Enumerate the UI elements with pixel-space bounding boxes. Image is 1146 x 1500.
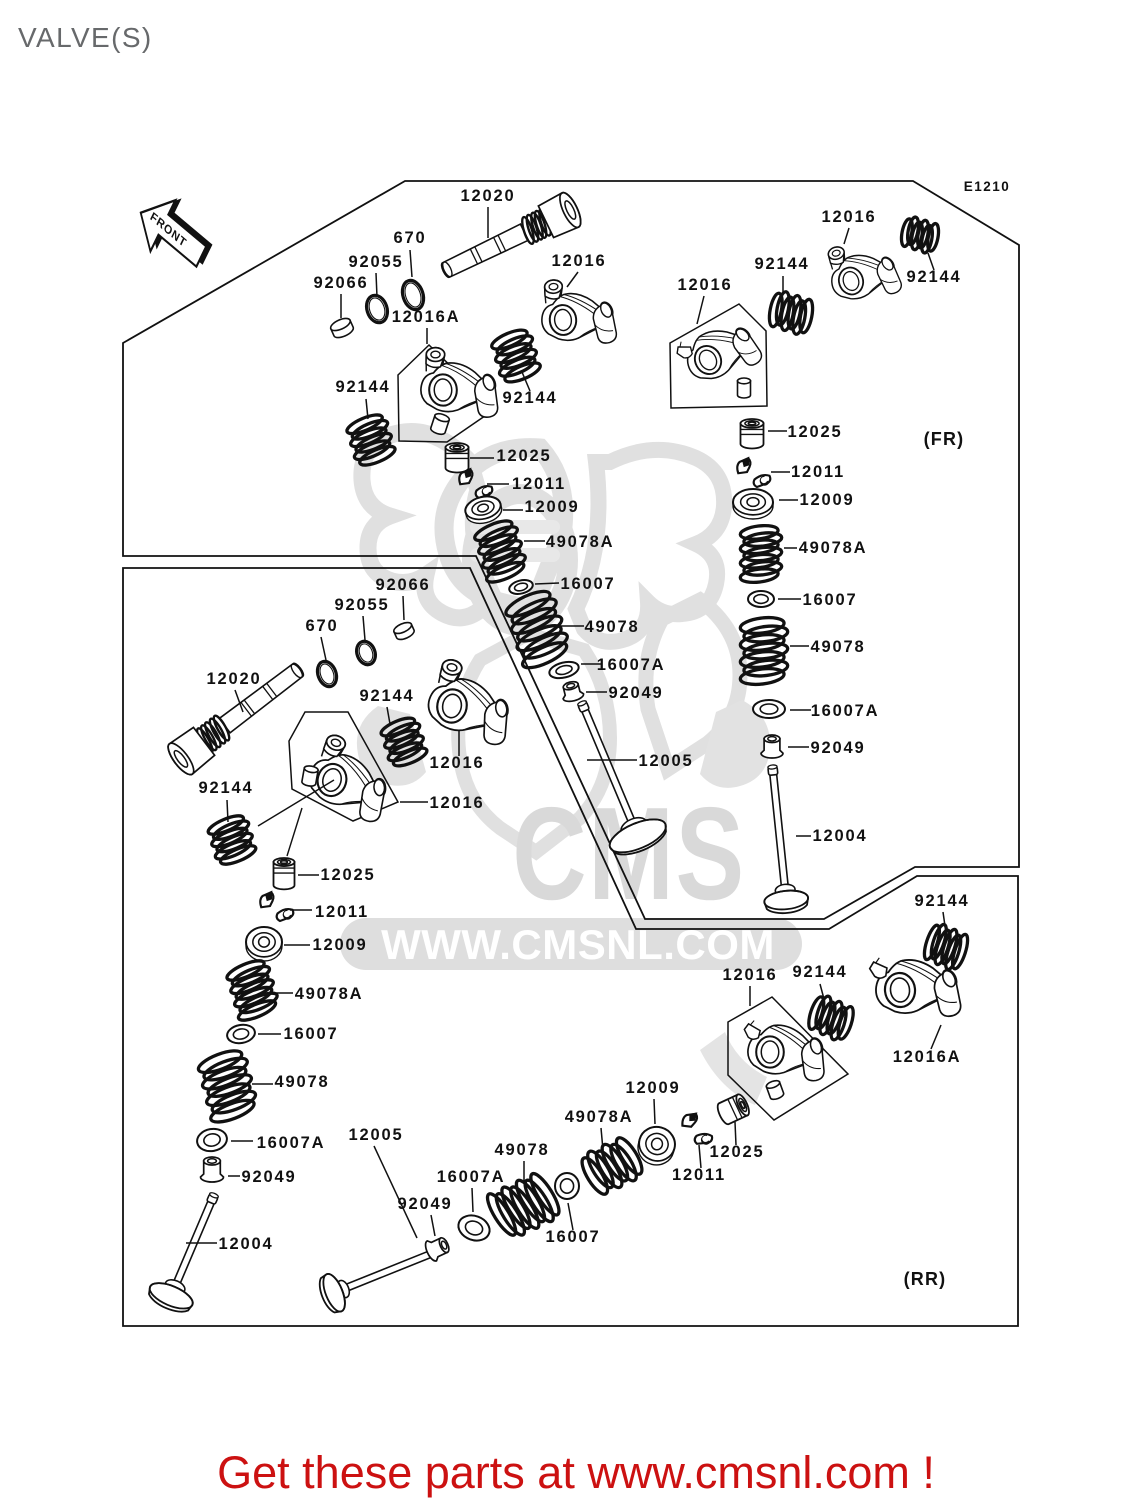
svg-text:12005: 12005 — [639, 752, 694, 770]
svg-text:(FR): (FR) — [924, 429, 965, 449]
svg-text:92049: 92049 — [242, 1168, 297, 1186]
svg-text:49078A: 49078A — [565, 1108, 634, 1126]
svg-text:12025: 12025 — [497, 447, 552, 465]
svg-text:12016A: 12016A — [392, 308, 461, 326]
svg-text:12009: 12009 — [626, 1079, 681, 1097]
svg-text:12025: 12025 — [321, 866, 376, 884]
svg-text:12011: 12011 — [672, 1166, 726, 1184]
svg-text:92066: 92066 — [314, 274, 369, 292]
svg-text:92066: 92066 — [376, 576, 431, 594]
svg-text:92144: 92144 — [915, 892, 970, 910]
svg-text:12016: 12016 — [822, 208, 877, 226]
svg-text:12025: 12025 — [788, 423, 843, 441]
svg-text:49078: 49078 — [811, 638, 866, 656]
svg-text:12020: 12020 — [461, 187, 516, 205]
svg-text:16007: 16007 — [561, 575, 616, 593]
svg-text:E1210: E1210 — [964, 179, 1011, 194]
svg-text:92049: 92049 — [811, 739, 866, 757]
svg-text:Get these parts at www.cmsnl.c: Get these parts at www.cmsnl.com ! — [217, 1447, 935, 1498]
svg-text:92049: 92049 — [609, 684, 664, 702]
svg-text:92144: 92144 — [755, 255, 810, 273]
svg-text:16007: 16007 — [284, 1025, 339, 1043]
svg-text:12025: 12025 — [710, 1143, 765, 1161]
svg-text:12009: 12009 — [800, 491, 855, 509]
svg-text:12004: 12004 — [813, 827, 868, 845]
svg-text:12016: 12016 — [552, 252, 607, 270]
svg-text:92144: 92144 — [907, 268, 962, 286]
svg-text:16007A: 16007A — [257, 1134, 326, 1152]
svg-text:92144: 92144 — [360, 687, 415, 705]
svg-text:12016: 12016 — [678, 276, 733, 294]
svg-text:12004: 12004 — [219, 1235, 274, 1253]
svg-text:670: 670 — [394, 229, 427, 247]
svg-text:670: 670 — [306, 617, 339, 635]
svg-text:16007: 16007 — [803, 591, 858, 609]
svg-text:12016: 12016 — [430, 794, 485, 812]
svg-text:49078: 49078 — [585, 618, 640, 636]
svg-text:12005: 12005 — [349, 1126, 404, 1144]
svg-text:49078A: 49078A — [546, 533, 615, 551]
svg-text:49078: 49078 — [275, 1073, 330, 1091]
svg-text:(RR): (RR) — [904, 1269, 947, 1289]
svg-text:92049: 92049 — [398, 1195, 453, 1213]
svg-text:49078A: 49078A — [295, 985, 364, 1003]
svg-text:92144: 92144 — [199, 779, 254, 797]
svg-text:92055: 92055 — [335, 596, 390, 614]
svg-text:WWW.CMSNL.COM: WWW.CMSNL.COM — [381, 921, 775, 968]
svg-text:VALVE(S): VALVE(S) — [18, 22, 153, 53]
svg-text:12011: 12011 — [315, 903, 369, 921]
svg-text:12016A: 12016A — [893, 1048, 962, 1066]
svg-text:92144: 92144 — [503, 389, 558, 407]
svg-text:12016: 12016 — [430, 754, 485, 772]
svg-text:16007A: 16007A — [597, 656, 666, 674]
svg-text:92144: 92144 — [336, 378, 391, 396]
svg-text:49078: 49078 — [495, 1141, 550, 1159]
svg-text:12016: 12016 — [723, 966, 778, 984]
svg-text:12011: 12011 — [791, 463, 845, 481]
svg-text:16007A: 16007A — [437, 1168, 506, 1186]
svg-text:92144: 92144 — [793, 963, 848, 981]
svg-text:16007A: 16007A — [811, 702, 880, 720]
svg-text:49078A: 49078A — [799, 539, 868, 557]
svg-text:12011: 12011 — [512, 475, 566, 493]
svg-text:12009: 12009 — [313, 936, 368, 954]
svg-text:12020: 12020 — [207, 670, 262, 688]
svg-text:16007: 16007 — [546, 1228, 601, 1246]
svg-text:92055: 92055 — [349, 253, 404, 271]
svg-text:12009: 12009 — [525, 498, 580, 516]
